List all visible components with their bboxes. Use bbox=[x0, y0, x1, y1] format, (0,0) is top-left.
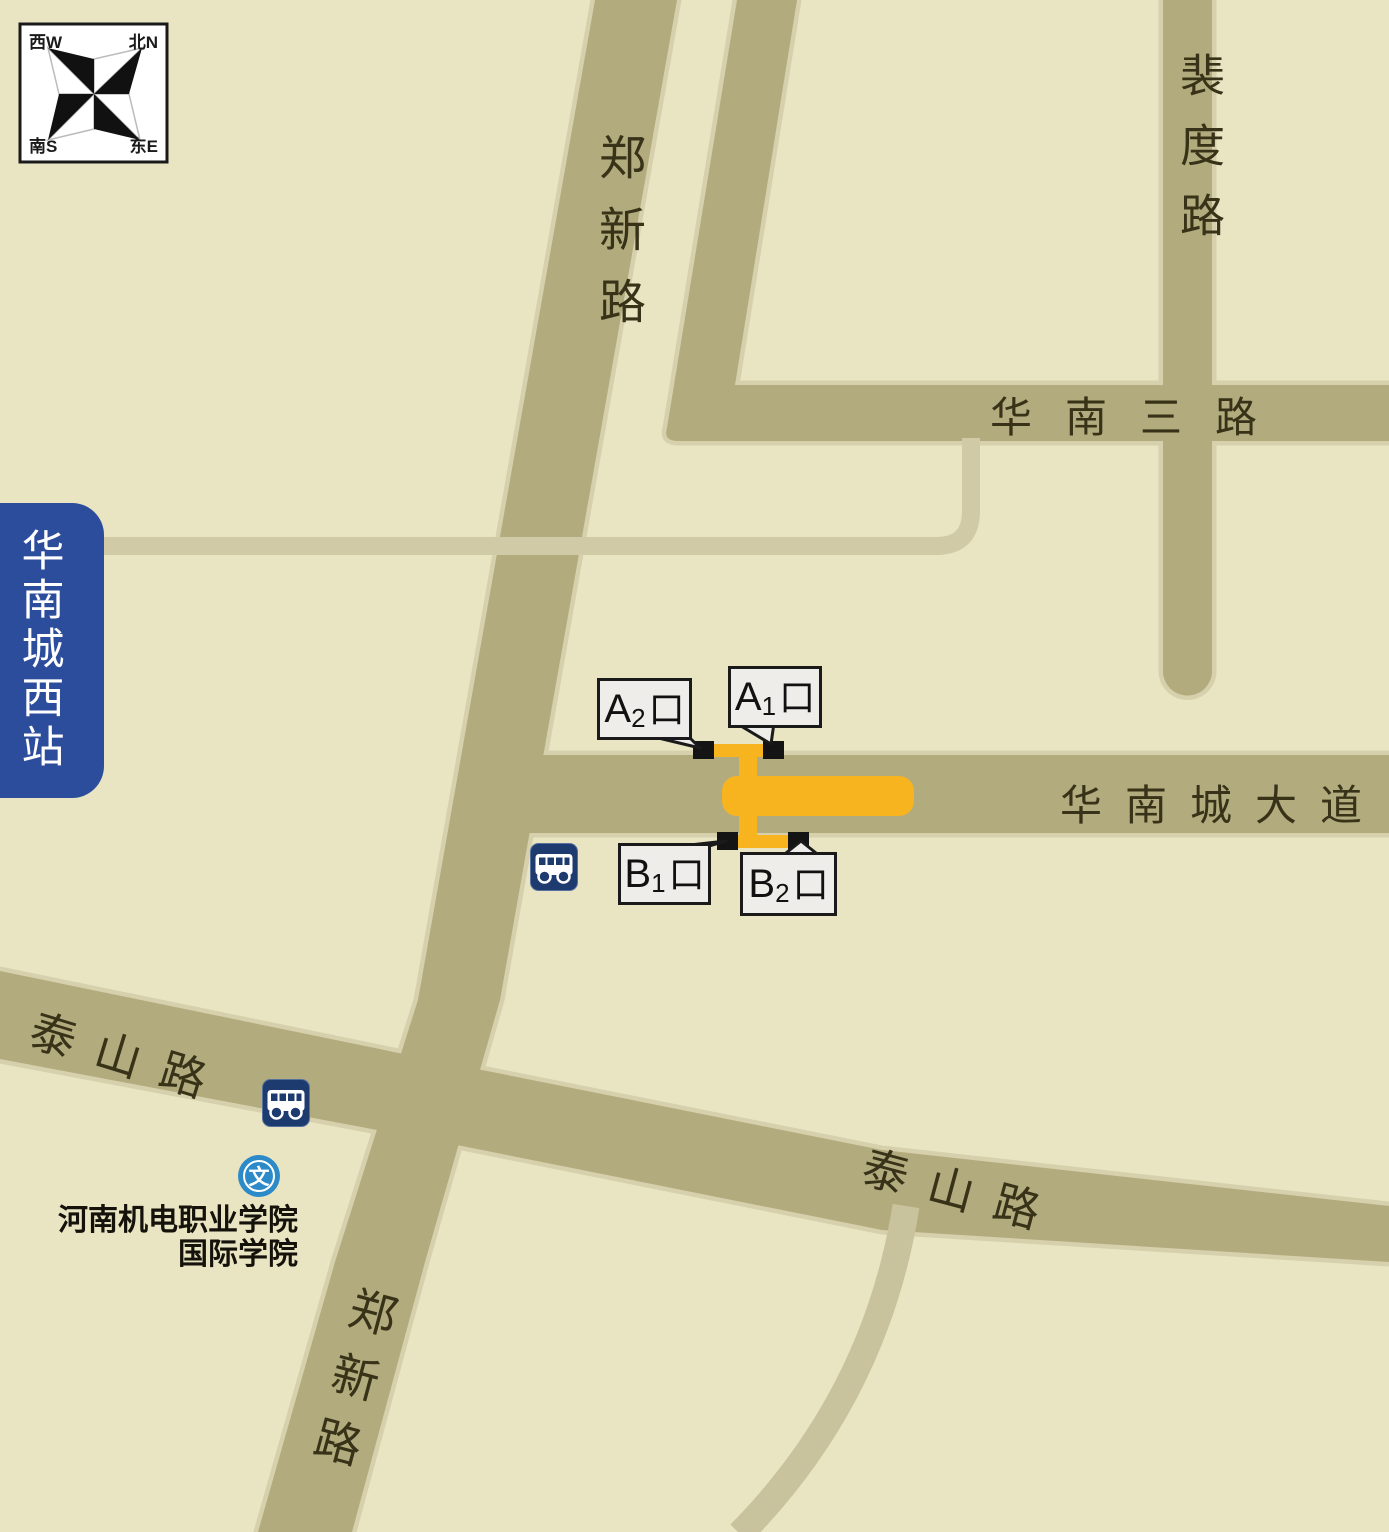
exit-letter: B bbox=[748, 864, 775, 904]
exit-callout-a1: A1口 bbox=[728, 666, 822, 728]
bus-stop-icon-avenue bbox=[531, 844, 578, 891]
exit-number: 1 bbox=[762, 693, 776, 719]
exit-suffix: 口 bbox=[649, 692, 685, 728]
college-poi-label: 河南机电职业学院 国际学院 bbox=[38, 1204, 298, 1272]
exit-suffix: 口 bbox=[669, 857, 705, 893]
culture-poi-icon: 文 bbox=[238, 1155, 280, 1197]
exit-bar-bottom bbox=[730, 835, 798, 848]
exit-suffix: 口 bbox=[793, 867, 829, 903]
compass-rose: 西W 北N 南S 东E bbox=[20, 24, 167, 162]
college-line1: 河南机电职业学院 bbox=[38, 1204, 298, 1238]
compass-label-nw: 西W bbox=[29, 33, 63, 52]
compass-label-ne: 北N bbox=[129, 33, 158, 52]
compass-label-se: 东E bbox=[130, 136, 158, 156]
exit-callout-b2: B2口 bbox=[740, 852, 837, 916]
exit-letter: A bbox=[735, 677, 762, 717]
huanansan-road bbox=[666, 0, 1389, 441]
exit-letter: A bbox=[604, 689, 631, 729]
road-label-zhengxin-top: 郑新路 bbox=[584, 133, 653, 349]
college-line2: 国际学院 bbox=[38, 1238, 298, 1272]
station-name-sign: 华南城西站 bbox=[0, 503, 104, 798]
road-label-avenue: 华南城大道 bbox=[1060, 772, 1385, 833]
road-label-huanansan: 华南三路 bbox=[990, 384, 1290, 445]
bus-stop-icon-taishan bbox=[263, 1080, 310, 1127]
exit-callout-a2: A2口 bbox=[597, 678, 692, 740]
road-label-peidu: 裴度路 bbox=[1166, 52, 1231, 262]
culture-poi-char: 文 bbox=[249, 1165, 271, 1189]
exit-marker-a1 bbox=[763, 741, 784, 759]
minor-road-south bbox=[740, 1206, 906, 1532]
exit-number: 2 bbox=[775, 880, 789, 906]
station-name-text: 华南城西站 bbox=[8, 528, 70, 773]
station-body bbox=[722, 776, 914, 816]
exit-callout-b1: B1口 bbox=[618, 843, 711, 905]
exit-number: 2 bbox=[631, 705, 645, 731]
exit-letter: B bbox=[624, 854, 651, 894]
compass-label-sw: 南S bbox=[29, 136, 57, 156]
exit-suffix: 口 bbox=[779, 680, 815, 716]
station-area-map: 文 西W 北N 南S 东E 郑新路 裴度路 华南三路 华南城 bbox=[0, 0, 1389, 1532]
minor-road-west bbox=[0, 438, 971, 546]
exit-number: 1 bbox=[651, 870, 665, 896]
